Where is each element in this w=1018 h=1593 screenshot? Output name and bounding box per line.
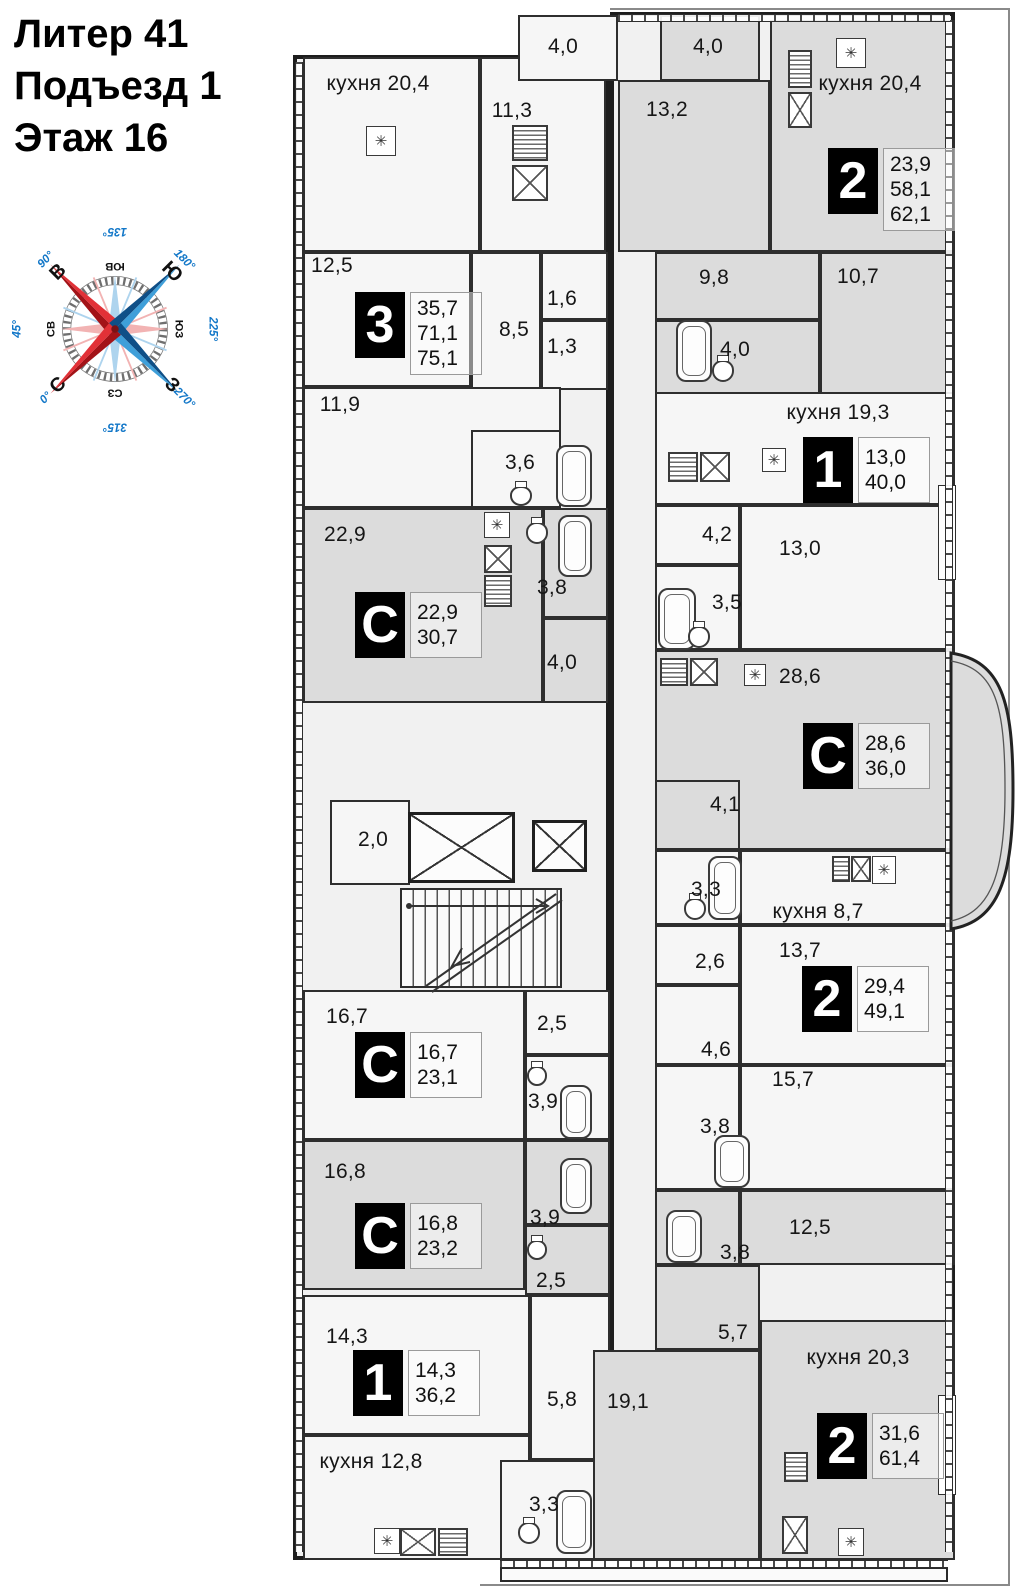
apartment-type-badge: 2	[802, 966, 852, 1032]
apartment-area-value: 75,1	[417, 346, 475, 371]
room-area-label: 3,8	[700, 1115, 730, 1139]
room	[618, 80, 770, 252]
compass-degree-label: 45°	[10, 320, 23, 339]
window-band-right	[945, 20, 953, 1552]
elevator-shaft	[408, 812, 515, 883]
toilet-icon	[712, 360, 734, 382]
room-area-label: 3,3	[691, 878, 721, 902]
room-area-label: 4,0	[548, 35, 578, 59]
apartment-area-value: 13,0	[865, 445, 923, 470]
room-area-label: 1,6	[547, 287, 577, 311]
apartment-area-value: 31,6	[879, 1421, 937, 1446]
room-area-label: кухня 8,7	[772, 900, 863, 924]
sink-icon	[851, 856, 871, 882]
compass-degree-label: 0°	[37, 389, 54, 406]
apartment-badge: С16,723,1	[355, 1032, 482, 1098]
room-area-label: 22,9	[324, 523, 366, 547]
room-area-label: 14,3	[326, 1325, 368, 1349]
apartment-area-value: 22,9	[417, 600, 475, 625]
apartment-badge: С28,636,0	[803, 723, 930, 789]
apartment-area-value: 40,0	[865, 470, 923, 495]
apartment-type-badge: 1	[803, 437, 853, 503]
stove-icon	[784, 1452, 808, 1482]
window-band-top	[618, 14, 950, 22]
compass-direction-label: ЮЗ	[172, 320, 184, 339]
room-area-label: 3,5	[712, 591, 742, 615]
apartment-badge: 113,040,0	[803, 437, 930, 503]
sink-icon	[690, 658, 718, 686]
room-area-label: 13,7	[779, 939, 821, 963]
apartment-type-badge: 2	[817, 1413, 867, 1479]
ventilation-icon: ✳	[838, 1528, 864, 1556]
apartment-area-value: 14,3	[415, 1358, 473, 1383]
compass-rose: С0°СВ45°В90°ЮВ135°Ю180°ЮЗ225°З270°СЗ315°	[8, 222, 222, 436]
ventilation-icon: ✳	[484, 512, 510, 538]
sink-icon	[512, 165, 548, 201]
apartment-area-value: 16,7	[417, 1040, 475, 1065]
ventilation-icon: ✳	[744, 664, 766, 686]
room-area-label: 13,0	[779, 537, 821, 561]
ventilation-icon: ✳	[374, 1528, 400, 1554]
room-area-label: 5,7	[718, 1321, 748, 1345]
site-frame-bottom	[480, 1584, 1010, 1586]
bathtub-icon	[560, 1158, 592, 1214]
apartment-badge: 335,771,175,1	[355, 292, 482, 375]
apartment-area-value: 36,2	[415, 1383, 473, 1408]
window-band-left	[295, 62, 303, 1552]
apartment-area-value: 28,6	[865, 731, 923, 756]
toilet-icon	[527, 1240, 547, 1260]
apartment-areas: 23,958,162,1	[883, 148, 955, 231]
room-area-label: 3,9	[528, 1090, 558, 1114]
toilet-icon	[688, 626, 710, 648]
room-area-label: кухня 20,4	[818, 72, 921, 96]
balcony-ledge	[500, 1568, 948, 1582]
room-area-label: 2,5	[537, 1012, 567, 1036]
apartment-areas: 28,636,0	[858, 723, 930, 789]
room-area-label: 4,1	[710, 793, 740, 817]
room-area-label: кухня 20,4	[326, 72, 429, 96]
bay-window-wall	[951, 653, 1013, 929]
entrance-title: Подъезд 1	[14, 60, 222, 112]
stove-icon	[660, 658, 688, 686]
compass-degree-label: 315°	[103, 421, 127, 434]
apartment-area-value: 23,1	[417, 1065, 475, 1090]
apartment-type-badge: С	[803, 723, 853, 789]
apartment-area-value: 58,1	[890, 177, 948, 202]
room-area-label: 12,5	[311, 254, 353, 278]
room-area-label: 9,8	[699, 266, 729, 290]
sink-icon	[700, 452, 730, 482]
compass-direction-label: СВ	[46, 321, 58, 337]
site-frame-top	[610, 8, 1010, 10]
floor-plan-page: Литер 41 Подъезд 1 Этаж 16 С0°СВ45°В90°Ю…	[0, 0, 1018, 1593]
stove-icon	[668, 452, 698, 482]
toilet-icon	[526, 522, 548, 544]
plan-header: Литер 41 Подъезд 1 Этаж 16	[14, 8, 222, 164]
apartment-area-value: 29,4	[864, 974, 922, 999]
sink-icon	[782, 1516, 808, 1554]
apartment-type-badge: С	[355, 1032, 405, 1098]
room-area-label: 4,2	[702, 523, 732, 547]
room-area-label: 28,6	[779, 665, 821, 689]
room-area-label: 3,6	[505, 451, 535, 475]
room-area-label: кухня 12,8	[319, 1450, 422, 1474]
bathtub-icon	[558, 515, 592, 577]
apartment-areas: 13,040,0	[858, 437, 930, 503]
room-area-label: 3,9	[530, 1206, 560, 1230]
apartment-badge: 231,661,4	[817, 1413, 944, 1479]
apartment-areas: 14,336,2	[408, 1350, 480, 1416]
apartment-areas: 29,449,1	[857, 966, 929, 1032]
toilet-icon	[518, 1522, 540, 1544]
room-area-label: кухня 20,3	[806, 1346, 909, 1370]
stove-icon	[484, 575, 512, 607]
apartment-area-value: 49,1	[864, 999, 922, 1024]
ventilation-icon: ✳	[366, 126, 396, 156]
apartment-area-value: 61,4	[879, 1446, 937, 1471]
room-area-label: 2,0	[358, 828, 388, 852]
apartment-type-badge: 3	[355, 292, 405, 358]
compass-direction-label: СЗ	[108, 386, 123, 398]
bathtub-icon	[560, 1085, 592, 1139]
room-area-label: 3,3	[529, 1493, 559, 1517]
apartment-area-value: 35,7	[417, 296, 475, 321]
stove-icon	[438, 1528, 468, 1556]
sink-icon	[400, 1528, 436, 1556]
apartment-area-value: 71,1	[417, 321, 475, 346]
apartment-badge: С16,823,2	[355, 1203, 482, 1269]
room-area-label: 10,7	[837, 265, 879, 289]
room-area-label: 2,5	[536, 1269, 566, 1293]
room-area-label: 11,3	[492, 99, 533, 123]
room-area-label: 2,6	[695, 950, 725, 974]
stairs	[400, 888, 562, 988]
apartment-type-badge: С	[355, 1203, 405, 1269]
apartment-areas: 31,661,4	[872, 1413, 944, 1479]
stove-icon	[832, 856, 850, 882]
compass-degree-label: 135°	[103, 225, 127, 238]
apartment-areas: 35,771,175,1	[410, 292, 482, 375]
apartment-area-value: 23,9	[890, 152, 948, 177]
bathtub-icon	[666, 1210, 702, 1263]
bathtub-icon	[676, 320, 712, 382]
apartment-area-value: 36,0	[865, 756, 923, 781]
room-area-label: 12,5	[789, 1216, 831, 1240]
apartment-area-value: 23,2	[417, 1236, 475, 1261]
room-area-label: 13,2	[646, 98, 688, 122]
apartment-type-badge: С	[355, 592, 405, 658]
bay-window-glazing	[951, 661, 1005, 921]
apartment-badge: 114,336,2	[353, 1350, 480, 1416]
toilet-icon	[510, 486, 532, 506]
bathtub-icon	[556, 445, 592, 507]
ventilation-icon: ✳	[836, 38, 866, 68]
apartment-type-badge: 1	[353, 1350, 403, 1416]
apartment-area-value: 30,7	[417, 625, 475, 650]
room	[593, 1350, 760, 1560]
compass-degree-label: 225°	[207, 316, 220, 341]
room-area-label: 4,0	[720, 338, 750, 362]
room-area-label: 15,7	[772, 1068, 814, 1092]
ventilation-icon: ✳	[762, 448, 786, 472]
ventilation-icon: ✳	[872, 856, 896, 884]
apartment-badge: С22,930,7	[355, 592, 482, 658]
room-area-label: 1,3	[547, 335, 577, 359]
sink-icon	[484, 545, 512, 573]
stove-icon	[788, 50, 812, 88]
room-area-label: 3,8	[537, 576, 567, 600]
apartment-badge: 229,449,1	[802, 966, 929, 1032]
apartment-area-value: 62,1	[890, 202, 948, 227]
room-area-label: кухня 19,3	[786, 401, 889, 425]
apartment-area-value: 16,8	[417, 1211, 475, 1236]
room-area-label: 3,8	[720, 1241, 750, 1265]
window-band-bottom	[500, 1560, 948, 1568]
building-title: Литер 41	[14, 8, 222, 60]
room-area-label: 16,8	[324, 1160, 366, 1184]
room-area-label: 8,5	[499, 318, 529, 342]
bathtub-icon	[556, 1490, 592, 1554]
apartment-type-badge: 2	[828, 148, 878, 214]
room	[740, 505, 955, 650]
floor-title: Этаж 16	[14, 112, 222, 164]
elevator-shaft	[532, 820, 587, 872]
apartment-areas: 22,930,7	[410, 592, 482, 658]
apartment-areas: 16,723,1	[410, 1032, 482, 1098]
room-area-label: 16,7	[326, 1005, 368, 1029]
room-area-label: 4,0	[547, 651, 577, 675]
compass-direction-label: ЮВ	[105, 260, 125, 272]
toilet-icon	[527, 1066, 547, 1086]
apartment-areas: 16,823,2	[410, 1203, 482, 1269]
bathtub-icon	[714, 1135, 750, 1188]
site-frame-right	[1008, 8, 1010, 1586]
sink-icon	[788, 92, 812, 128]
stove-icon	[512, 125, 548, 161]
room-area-label: 4,6	[701, 1038, 731, 1062]
room	[740, 1190, 955, 1265]
room-area-label: 4,0	[693, 35, 723, 59]
room	[655, 252, 820, 320]
room-area-label: 11,9	[320, 393, 361, 417]
room-area-label: 19,1	[607, 1390, 649, 1414]
apartment-badge: 223,958,162,1	[828, 148, 955, 231]
room-area-label: 5,8	[547, 1388, 577, 1412]
